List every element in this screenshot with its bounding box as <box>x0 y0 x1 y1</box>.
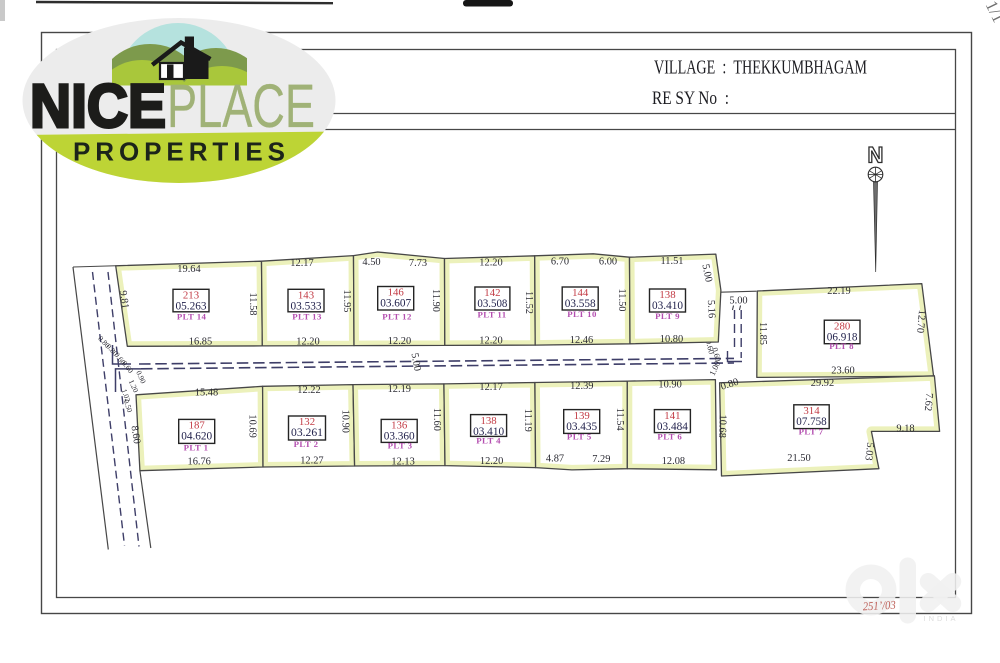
svg-text:12.22: 12.22 <box>297 385 320 396</box>
svg-text:PLT 5: PLT 5 <box>567 432 592 442</box>
svg-text:4.87: 4.87 <box>546 454 564 465</box>
svg-text:03.533: 03.533 <box>291 299 322 313</box>
svg-text:PLT 4: PLT 4 <box>476 436 501 446</box>
svg-text:PLT 12: PLT 12 <box>382 312 412 322</box>
svg-text:21.50: 21.50 <box>787 453 810 464</box>
svg-text:5.03: 5.03 <box>862 442 875 461</box>
svg-text:PLT 11: PLT 11 <box>477 310 506 320</box>
svg-text:11.60: 11.60 <box>431 408 442 431</box>
svg-text:10.68: 10.68 <box>716 414 728 438</box>
svg-text:VILLAGE : THEKKUMBHAGAM: VILLAGE : THEKKUMBHAGAM <box>654 58 867 79</box>
svg-text:12.17: 12.17 <box>479 382 502 393</box>
svg-text:12.20: 12.20 <box>480 456 503 467</box>
svg-text:RE SY No :: RE SY No : <box>652 88 729 109</box>
svg-text:PLT 2: PLT 2 <box>294 439 319 449</box>
svg-text:11.90: 11.90 <box>430 289 441 312</box>
svg-text:03.261: 03.261 <box>291 425 323 439</box>
svg-text:PLACE: PLACE <box>167 72 315 140</box>
svg-text:29.92: 29.92 <box>811 378 834 389</box>
svg-text:7.62: 7.62 <box>922 392 935 411</box>
svg-text:11.52: 11.52 <box>523 291 534 314</box>
svg-text:PLT 14: PLT 14 <box>177 312 207 322</box>
svg-text:5.16: 5.16 <box>705 300 717 319</box>
svg-text:12.70: 12.70 <box>914 309 927 333</box>
svg-text:12.46: 12.46 <box>570 335 593 346</box>
svg-text:12.20: 12.20 <box>479 336 502 347</box>
svg-text:12.20: 12.20 <box>296 337 319 348</box>
svg-text:PROPERTIES: PROPERTIES <box>73 137 285 167</box>
svg-text:12.20: 12.20 <box>388 336 411 347</box>
svg-text:11.51: 11.51 <box>661 256 684 267</box>
svg-text:7.73: 7.73 <box>409 258 427 269</box>
svg-text:11.95: 11.95 <box>341 290 352 313</box>
svg-text:11.50: 11.50 <box>616 289 627 312</box>
svg-text:12.13: 12.13 <box>391 457 414 468</box>
svg-text:03.508: 03.508 <box>477 296 507 310</box>
svg-text:22.19: 22.19 <box>827 286 850 297</box>
svg-text:PLT 1: PLT 1 <box>184 442 209 452</box>
svg-text:05.263: 05.263 <box>176 299 207 313</box>
svg-text:11.19: 11.19 <box>522 409 533 432</box>
svg-text:PLT 9: PLT 9 <box>655 311 680 321</box>
svg-text:6.70: 6.70 <box>551 257 569 268</box>
svg-text:10.80: 10.80 <box>660 334 683 345</box>
svg-text:12.19: 12.19 <box>388 384 411 395</box>
svg-text:10.90: 10.90 <box>658 380 681 391</box>
svg-text:12.08: 12.08 <box>662 456 685 467</box>
svg-text:16.85: 16.85 <box>189 337 212 348</box>
svg-text:19.64: 19.64 <box>177 264 201 275</box>
svg-text:23.60: 23.60 <box>831 366 854 377</box>
svg-text:03.607: 03.607 <box>380 296 411 310</box>
svg-text:11.85: 11.85 <box>757 322 768 345</box>
svg-text:16.76: 16.76 <box>188 457 211 468</box>
svg-text:PLT 6: PLT 6 <box>657 432 682 442</box>
svg-text:5.00: 5.00 <box>729 296 747 307</box>
svg-text:PLT 8: PLT 8 <box>829 341 854 351</box>
svg-text:15.48: 15.48 <box>195 387 218 398</box>
svg-text:NICE: NICE <box>30 72 166 140</box>
svg-text:PLT 3: PLT 3 <box>388 440 413 450</box>
svg-text:12.17: 12.17 <box>290 258 313 269</box>
svg-text:6.00: 6.00 <box>599 257 617 268</box>
svg-text:251’/03: 251’/03 <box>862 598 896 614</box>
svg-text:PLT 7: PLT 7 <box>799 427 824 437</box>
svg-text:10.69: 10.69 <box>247 414 258 437</box>
svg-text:PLT 13: PLT 13 <box>292 312 322 322</box>
svg-text:10.90: 10.90 <box>340 410 351 433</box>
svg-text:4.50: 4.50 <box>362 257 380 268</box>
svg-text:12.39: 12.39 <box>570 381 593 392</box>
svg-text:PLT 10: PLT 10 <box>567 309 597 319</box>
svg-text:INDIA: INDIA <box>923 614 958 623</box>
svg-text:7.29: 7.29 <box>592 454 610 465</box>
svg-text:11.58: 11.58 <box>247 293 258 316</box>
svg-text:12.27: 12.27 <box>300 456 323 467</box>
svg-text:9.18: 9.18 <box>896 423 914 434</box>
svg-text:04.620: 04.620 <box>181 429 212 443</box>
svg-text:N: N <box>868 143 884 168</box>
svg-text:12.20: 12.20 <box>479 258 502 269</box>
svg-text:11.54: 11.54 <box>614 408 625 432</box>
